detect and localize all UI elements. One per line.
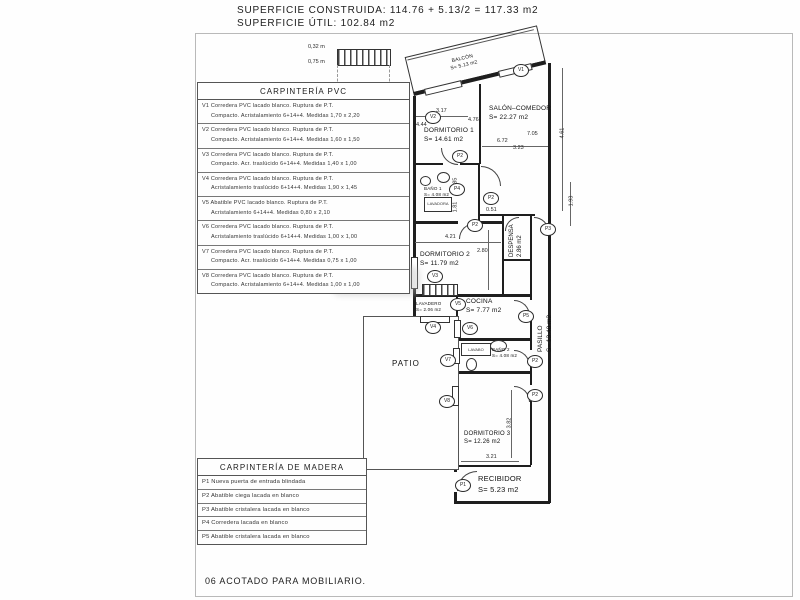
dorm3-area: S= 12.26 m2: [464, 438, 510, 446]
ref-circle-p2-dorm3: P2: [527, 389, 543, 402]
dim-3-82: 3.82: [506, 418, 512, 429]
pvc-row-v8: V8 Corredera PVC lacado blanco. Ruptura …: [198, 270, 409, 293]
salon-area: S= 22.27 m2: [489, 113, 551, 122]
pvc-row-v8-line1: V8 Corredera PVC lacado blanco. Ruptura …: [202, 273, 333, 279]
madera-row-p5: P5 Abatible cristalera lacada en blanco: [198, 531, 366, 544]
dimline-4-61: [562, 68, 563, 211]
room-label-recibidor: RECIBIDOR S= 5.23 m2: [478, 474, 521, 495]
wall-dorm1-bottom-a: [413, 163, 443, 165]
pvc-row-v2: V2 Corredera PVC lacado blanco. Ruptura …: [198, 124, 409, 148]
dorm2-name: DORMITORIO 2: [420, 250, 470, 259]
room-label-dorm2: DORMITORIO 2 S= 11.79 m2: [420, 250, 470, 268]
madera-row-p2: P2 Abatible ciega lacada en blanco: [198, 490, 366, 504]
room-label-cocina: COCINA S= 7.77 m2: [466, 297, 501, 315]
ref-circle-v4: V4: [425, 321, 441, 334]
wall-dorm2-top: [480, 221, 503, 224]
ref-circle-v1: V1: [513, 64, 529, 77]
wall-dorm1-salon: [479, 84, 481, 164]
salon-name: SALÓN–COMEDOR: [489, 104, 551, 113]
pvc-row-v5-line2: Acristalamiento 6+14+4. Medidas 0,80 x 2…: [202, 209, 405, 219]
pvc-row-v7-line1: V7 Corredera PVC lacado blanco. Ruptura …: [202, 249, 333, 255]
pvc-row-v2-line1: V2 Corredera PVC lacado blanco. Ruptura …: [202, 127, 333, 133]
pvc-row-v4-line2: Acristalamiento traslúcido 6+14+4. Medid…: [202, 184, 405, 194]
room-label-bano2: BAÑO 2 S= 4.08 m2: [492, 347, 517, 359]
washer-box: LAVADORA: [424, 197, 452, 212]
pasillo-area: S= 13.40 m2: [545, 315, 554, 352]
dim-3-23: 3.23: [513, 145, 524, 151]
pvc-row-v6: V6 Corredera PVC lacado blanco. Ruptura …: [198, 221, 409, 245]
wall-dorm1-bottom-b: [460, 163, 480, 165]
wall-bano1-bottom: [413, 221, 458, 224]
pvc-row-v6-line2: Acristalamiento traslúcido 6+14+4. Medid…: [202, 233, 405, 243]
sink-icon: [437, 172, 450, 183]
wall-pasillo-d: [530, 401, 532, 465]
wall-bano2-bottom: [455, 371, 531, 374]
pvc-row-v1: V1 Corredera PVC lacado blanco. Ruptura …: [198, 100, 409, 124]
ref-circle-v5: V5: [450, 298, 466, 311]
pvc-row-v8-line2: Compacto. Acristalamiento 6+14+4. Medida…: [202, 281, 405, 291]
ref-circle-p1: P1: [455, 479, 471, 492]
wall-salon-bottom: [478, 214, 535, 216]
pvc-table-title: CARPINTERÍA PVC: [198, 83, 409, 100]
ref-circle-v6: V6: [462, 322, 478, 335]
ref-circle-v7: V7: [440, 354, 456, 367]
dimline-3-17: [416, 116, 468, 117]
ref-circle-p5: P5: [518, 310, 534, 323]
dim-0-75: 0,75 m: [308, 59, 325, 65]
pvc-carpentry-table: CARPINTERÍA PVC V1 Corredera PVC lacado …: [197, 82, 410, 294]
madera-carpentry-table: CARPINTERÍA DE MADERA P1 Nueva puerta de…: [197, 458, 367, 545]
cocina-area: S= 7.77 m2: [466, 306, 501, 315]
room-label-dorm3: DORMITORIO 3 S= 12.26 m2: [464, 430, 510, 447]
patio-name: PATIO: [392, 358, 420, 369]
wall-despensa-left: [502, 214, 504, 296]
despensa-name: DESPENSA: [508, 224, 516, 257]
madera-row-p3: P3 Abatible cristalera lacada en blanco: [198, 504, 366, 518]
pvc-row-v1-line2: Compacto. Acristalamiento 6+14+4. Medida…: [202, 112, 405, 122]
washbasin-box: LAVABO: [461, 343, 491, 356]
ref-circle-p2-bano2: P2: [527, 355, 543, 368]
lavadero-name: LAVADERO: [416, 301, 441, 307]
dim-0-32: 0,32 m: [308, 44, 325, 50]
dim-4-61: 4.61: [559, 128, 565, 139]
recibidor-name: RECIBIDOR: [478, 474, 521, 485]
dim-7-05: 7.05: [527, 131, 538, 137]
ref-circle-p2-dorm1: P2: [452, 150, 468, 163]
pvc-row-v3-line2: Compacto. Acr. traslúcido 6+14+4. Medida…: [202, 160, 405, 170]
patio-outline: [363, 316, 459, 470]
pvc-row-v7-line2: Compacto. Acr. traslúcido 6+14+4. Medida…: [202, 257, 405, 267]
pvc-row-v6-line1: V6 Corredera PVC lacado blanco. Ruptura …: [202, 224, 333, 230]
pasillo-name: PASILLO: [536, 315, 545, 352]
dorm1-area: S= 14.61 m2: [424, 135, 474, 144]
room-label-pasillo: PASILLO S= 13.40 m2: [536, 315, 554, 352]
ref-circle-p4: P4: [449, 183, 465, 196]
room-label-dorm1: DORMITORIO 1 S= 14.61 m2: [424, 126, 474, 144]
pvc-row-v7: V7 Corredera PVC lacado blanco. Ruptura …: [198, 246, 409, 270]
pvc-row-v4: V4 Corredera PVC lacado blanco. Ruptura …: [198, 173, 409, 197]
room-label-patio: PATIO: [392, 358, 420, 369]
pvc-row-v3: V3 Corredera PVC lacado blanco. Ruptura …: [198, 149, 409, 173]
ref-circle-p2-hall: P2: [483, 192, 499, 205]
wall-right-main: [548, 63, 551, 503]
dim-6-72: 6.72: [497, 138, 508, 144]
ref-circle-v2: V2: [425, 111, 441, 124]
ref-circle-v8: V8: [439, 395, 455, 408]
dorm3-name: DORMITORIO 3: [464, 430, 510, 438]
pvc-row-v4-line1: V4 Corredera PVC lacado blanco. Ruptura …: [202, 176, 333, 182]
ref-circle-p2-dorm2: P2: [467, 219, 483, 232]
wall-bottom-main: [454, 501, 550, 504]
window-v6: [454, 320, 461, 338]
dim-1-93: 1.93: [568, 196, 574, 207]
toilet2-icon: [466, 358, 477, 371]
room-label-bano1: BAÑO 1 S= 4.08 m2: [424, 186, 449, 198]
cocina-name: COCINA: [466, 297, 501, 306]
kitchen-counter: [422, 284, 458, 296]
superficie-construida-text: SUPERFICIE CONSTRUIDA: 114.76 + 5.13/2 =…: [237, 5, 538, 16]
dorm2-area: S= 11.79 m2: [420, 259, 470, 268]
ref-circle-p3: P3: [540, 223, 556, 236]
madera-row-p1: P1 Nueva puerta de entrada blindada: [198, 476, 366, 490]
madera-table-title: CARPINTERÍA DE MADERA: [198, 459, 366, 476]
dim-4-76: 4.76: [468, 117, 479, 123]
wall-dorm3-bottom: [454, 465, 531, 467]
lavadero-area: S= 2.06 m2: [416, 307, 441, 313]
dim-4-21: 4.21: [445, 234, 456, 240]
floor-plan-sheet: SUPERFICIE CONSTRUIDA: 114.76 + 5.13/2 =…: [0, 0, 800, 600]
ref-circle-v3: V3: [427, 270, 443, 283]
pvc-row-v3-line1: V3 Corredera PVC lacado blanco. Ruptura …: [202, 152, 333, 158]
superficie-util-text: SUPERFICIE ÚTIL: 102.84 m2: [237, 18, 395, 29]
pvc-row-v2-line2: Compacto. Acristalamiento 6+14+4. Medida…: [202, 136, 405, 146]
washbasin-label: LAVABO: [462, 344, 490, 356]
wall-pasillo-c: [530, 366, 532, 385]
bano2-area: S= 4.08 m2: [492, 353, 517, 359]
dim-2-80: 2.80: [477, 248, 488, 254]
stair-symbol: [337, 49, 391, 66]
madera-row-p4: P4 Corredera lacada en blanco: [198, 517, 366, 531]
dorm1-name: DORMITORIO 1: [424, 126, 474, 135]
dim-3-21: 3.21: [486, 454, 497, 460]
wall-pasillo-a: [530, 214, 532, 300]
toilet-icon: [420, 176, 431, 186]
dim-0-51: 0.51: [486, 207, 497, 213]
pvc-row-v5: V5 Abatible PVC lacado blanco. Ruptura d…: [198, 197, 409, 221]
room-label-lavadero: LAVADERO S= 2.06 m2: [416, 301, 441, 313]
dimline-3-21: [461, 461, 519, 462]
room-label-despensa: DESPENSA 2.86 m2: [508, 224, 525, 257]
pvc-row-v5-line1: V5 Abatible PVC lacado blanco. Ruptura d…: [202, 200, 328, 206]
washer-label: LAVADORA: [425, 198, 451, 210]
room-label-salon: SALÓN–COMEDOR S= 22.27 m2: [489, 104, 551, 122]
pvc-row-v1-line1: V1 Corredera PVC lacado blanco. Ruptura …: [202, 103, 333, 109]
dim-1-81: 1.81: [452, 202, 458, 213]
sheet-title-note: 06 ACOTADO PARA MOBILIARIO.: [205, 576, 366, 586]
bano1-area: S= 4.08 m2: [424, 192, 449, 198]
recibidor-area: S= 5.23 m2: [478, 485, 521, 496]
dimline-2-80: [488, 230, 489, 290]
despensa-area: 2.86 m2: [516, 224, 524, 257]
wall-despensa-bottom: [502, 259, 530, 261]
